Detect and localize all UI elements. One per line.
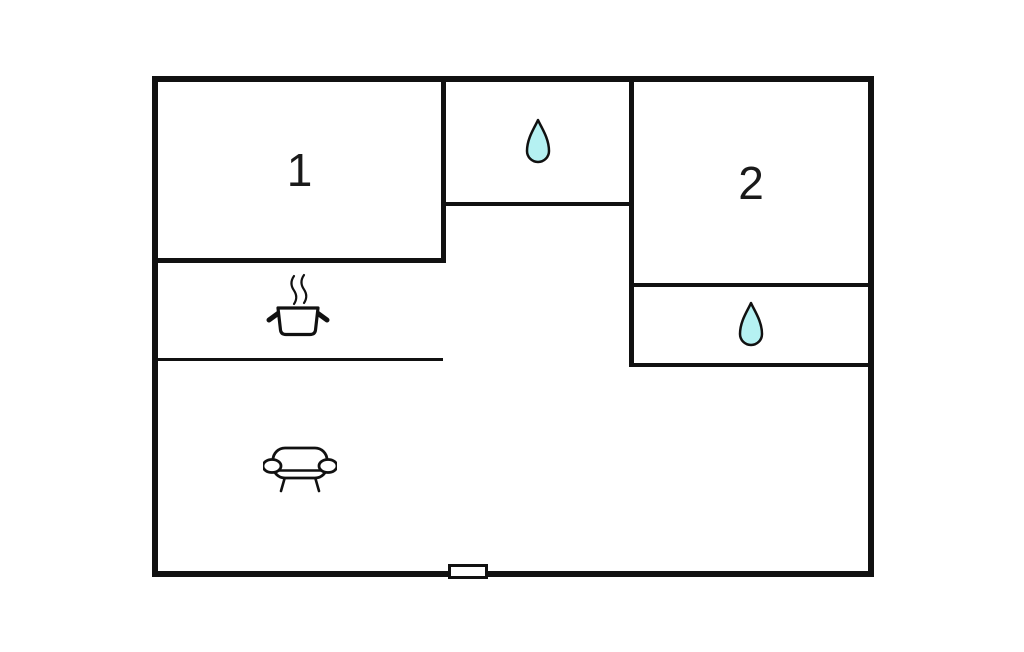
room-2: 2 — [634, 82, 868, 283]
stove-icon — [263, 270, 335, 342]
wall-bathroom1-south — [441, 202, 634, 206]
sofa-icon — [263, 445, 337, 495]
room-1-label: 1 — [287, 147, 313, 193]
wall-room1-south — [158, 258, 446, 263]
floor-plan: 1 2 — [0, 0, 1024, 652]
water-drop-icon — [523, 118, 553, 166]
water-drop-icon — [736, 301, 766, 349]
wall-kitchen-south — [158, 358, 443, 361]
wall-bathroom2-south — [629, 363, 868, 367]
bathroom-1 — [446, 82, 629, 202]
bathroom-2 — [634, 287, 868, 363]
room-1: 1 — [158, 82, 441, 258]
room-2-label: 2 — [738, 160, 764, 206]
door-marker — [448, 564, 488, 579]
